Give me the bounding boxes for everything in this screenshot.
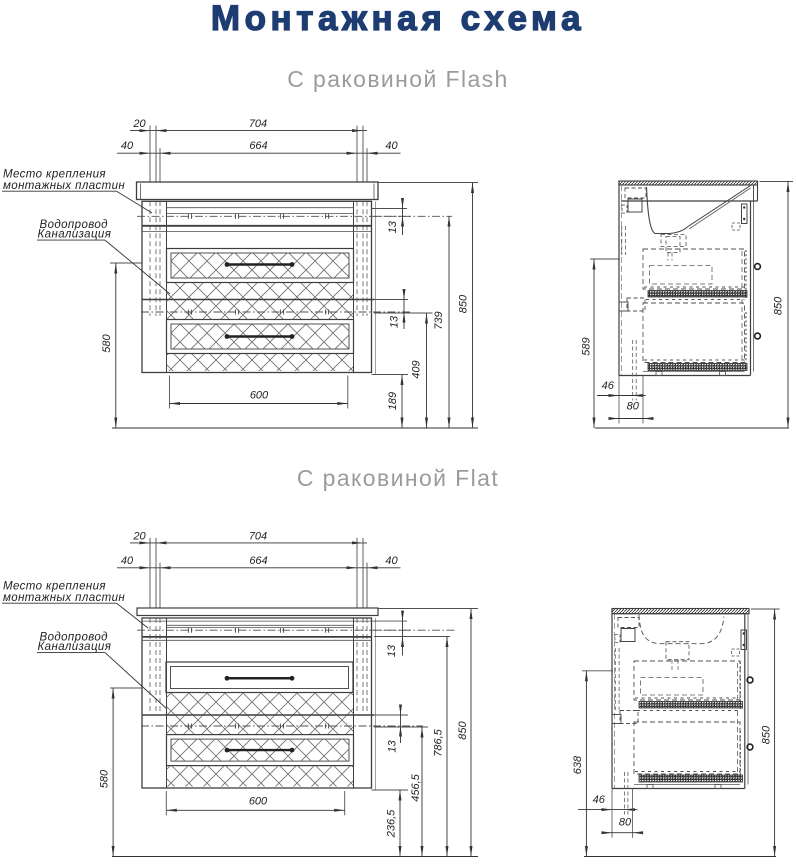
svg-text:600: 600: [250, 390, 269, 402]
svg-text:40: 40: [385, 555, 398, 567]
svg-text:600: 600: [249, 796, 268, 808]
svg-text:монтажных пластин: монтажных пластин: [3, 180, 125, 192]
svg-text:786,5: 786,5: [433, 728, 445, 756]
svg-text:664: 664: [249, 140, 267, 152]
svg-text:739: 739: [433, 311, 445, 329]
svg-text:850: 850: [773, 296, 785, 315]
svg-text:13: 13: [386, 644, 398, 657]
svg-text:638: 638: [572, 755, 584, 774]
svg-text:Канализация: Канализация: [38, 229, 112, 241]
svg-text:46: 46: [602, 380, 615, 392]
svg-text:80: 80: [619, 817, 632, 829]
svg-text:46: 46: [593, 794, 606, 806]
svg-text:13: 13: [387, 740, 399, 753]
svg-text:704: 704: [249, 530, 267, 542]
svg-text:20: 20: [132, 118, 146, 130]
svg-text:704: 704: [249, 118, 267, 130]
svg-text:236,5: 236,5: [386, 809, 398, 838]
svg-text:40: 40: [385, 140, 398, 152]
svg-text:189: 189: [387, 392, 399, 410]
svg-text:монтажных пластин: монтажных пластин: [3, 592, 125, 604]
svg-text:580: 580: [101, 333, 113, 352]
svg-text:580: 580: [99, 769, 111, 788]
svg-text:13: 13: [389, 315, 401, 328]
svg-text:13: 13: [387, 220, 399, 233]
svg-text:80: 80: [627, 401, 640, 413]
svg-text:Канализация: Канализация: [38, 641, 112, 653]
svg-text:850: 850: [457, 720, 469, 739]
svg-text:Место крепления: Место крепления: [3, 581, 106, 593]
svg-text:589: 589: [581, 337, 593, 355]
svg-text:456,5: 456,5: [410, 773, 422, 801]
svg-text:664: 664: [249, 555, 267, 567]
svg-text:40: 40: [121, 555, 134, 567]
svg-text:40: 40: [121, 140, 134, 152]
svg-text:409: 409: [411, 360, 423, 378]
svg-text:Место крепления: Место крепления: [3, 169, 106, 181]
svg-text:850: 850: [761, 725, 773, 744]
svg-text:20: 20: [132, 530, 146, 542]
svg-text:850: 850: [458, 294, 470, 313]
